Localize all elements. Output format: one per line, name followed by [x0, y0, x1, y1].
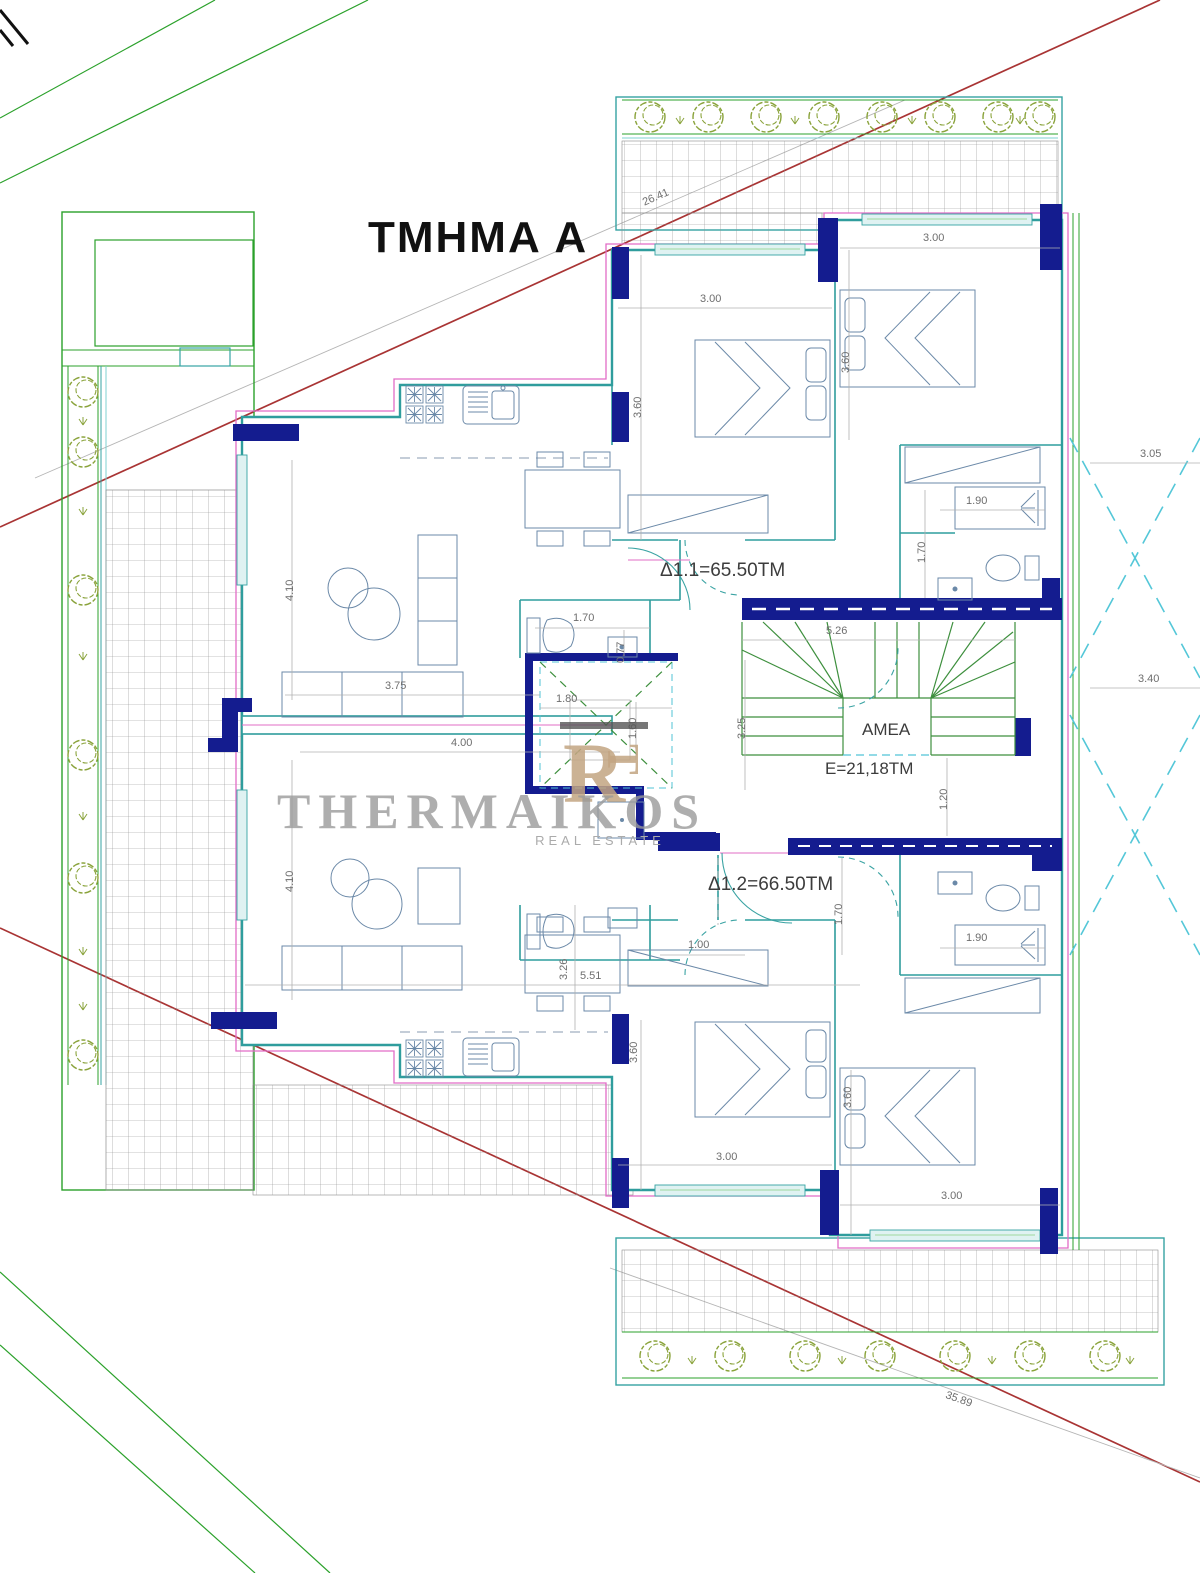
svg-text:3.00: 3.00	[700, 293, 721, 305]
svg-text:3.60: 3.60	[840, 352, 852, 373]
svg-text:1.20: 1.20	[938, 789, 950, 810]
site-plan-svg: 26.41 35.89 ΤΜΗΜΑ Α	[0, 0, 1200, 1573]
svg-text:3.05: 3.05	[1140, 448, 1161, 460]
svg-text:1.00: 1.00	[688, 939, 709, 951]
svg-text:1.90: 1.90	[966, 495, 987, 507]
svg-text:0.77: 0.77	[615, 642, 627, 663]
svg-text:3.26: 3.26	[558, 959, 570, 980]
svg-text:1.70: 1.70	[833, 904, 845, 925]
svg-text:4.10: 4.10	[284, 580, 296, 601]
svg-text:4.00: 4.00	[451, 737, 472, 749]
svg-text:1.70: 1.70	[916, 542, 928, 563]
watermark-tagline: REAL ESTATE	[535, 833, 665, 848]
svg-text:3.40: 3.40	[1138, 673, 1159, 685]
svg-text:1.90: 1.90	[966, 932, 987, 944]
svg-text:1.80: 1.80	[556, 693, 577, 705]
floor-plan-canvas: 26.41 35.89 ΤΜΗΜΑ Α	[0, 0, 1200, 1573]
svg-text:3.00: 3.00	[941, 1190, 962, 1202]
svg-text:1.70: 1.70	[573, 612, 594, 624]
svg-text:3.60: 3.60	[628, 1042, 640, 1063]
amea-label: AMEA	[862, 720, 911, 739]
svg-text:5.51: 5.51	[580, 970, 601, 982]
svg-text:4.10: 4.10	[284, 871, 296, 892]
svg-text:3.60: 3.60	[632, 397, 644, 418]
watermark-brand: THERMAIKOS	[277, 783, 707, 839]
svg-text:5.26: 5.26	[826, 625, 847, 637]
svg-text:3.00: 3.00	[716, 1151, 737, 1163]
section-title: ΤΜΗΜΑ Α	[368, 213, 588, 262]
svg-text:3.25: 3.25	[736, 718, 748, 739]
unit-label-d12: Δ1.2=66.50ΤΜ	[708, 874, 833, 895]
watermark-monogram-t: T	[598, 744, 649, 775]
site-dim-rear: 35.89	[944, 1389, 974, 1410]
svg-text:3.75: 3.75	[385, 680, 406, 692]
svg-text:3.00: 3.00	[923, 232, 944, 244]
svg-text:3.60: 3.60	[842, 1087, 854, 1108]
unit-label-d11: Δ1.1=65.50ΤΜ	[660, 560, 785, 581]
core-area-label: Ε=21,18ΤΜ	[825, 759, 913, 778]
